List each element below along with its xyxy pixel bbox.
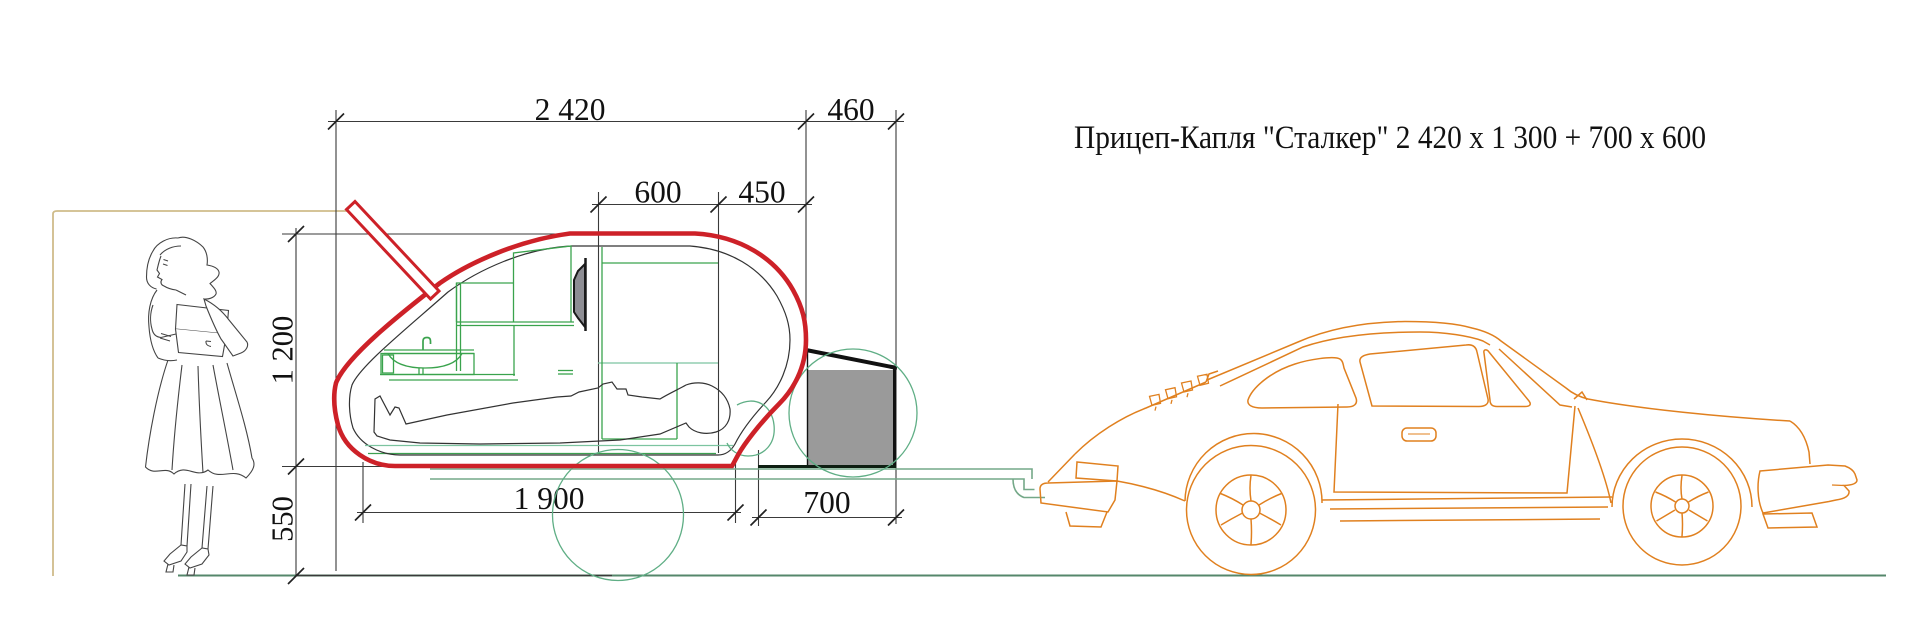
svg-text:2 420: 2 420 (535, 92, 606, 127)
svg-text:600: 600 (634, 175, 681, 210)
svg-text:450: 450 (738, 175, 785, 210)
svg-text:550: 550 (266, 496, 300, 542)
svg-text:Прицеп-Капля "Сталкер" 2 420 х: Прицеп-Капля "Сталкер" 2 420 х 1 300 + 7… (1074, 120, 1706, 156)
svg-text:700: 700 (803, 485, 850, 520)
svg-text:460: 460 (827, 92, 874, 127)
svg-text:1 200: 1 200 (266, 316, 300, 385)
svg-text:1 900: 1 900 (514, 481, 585, 516)
